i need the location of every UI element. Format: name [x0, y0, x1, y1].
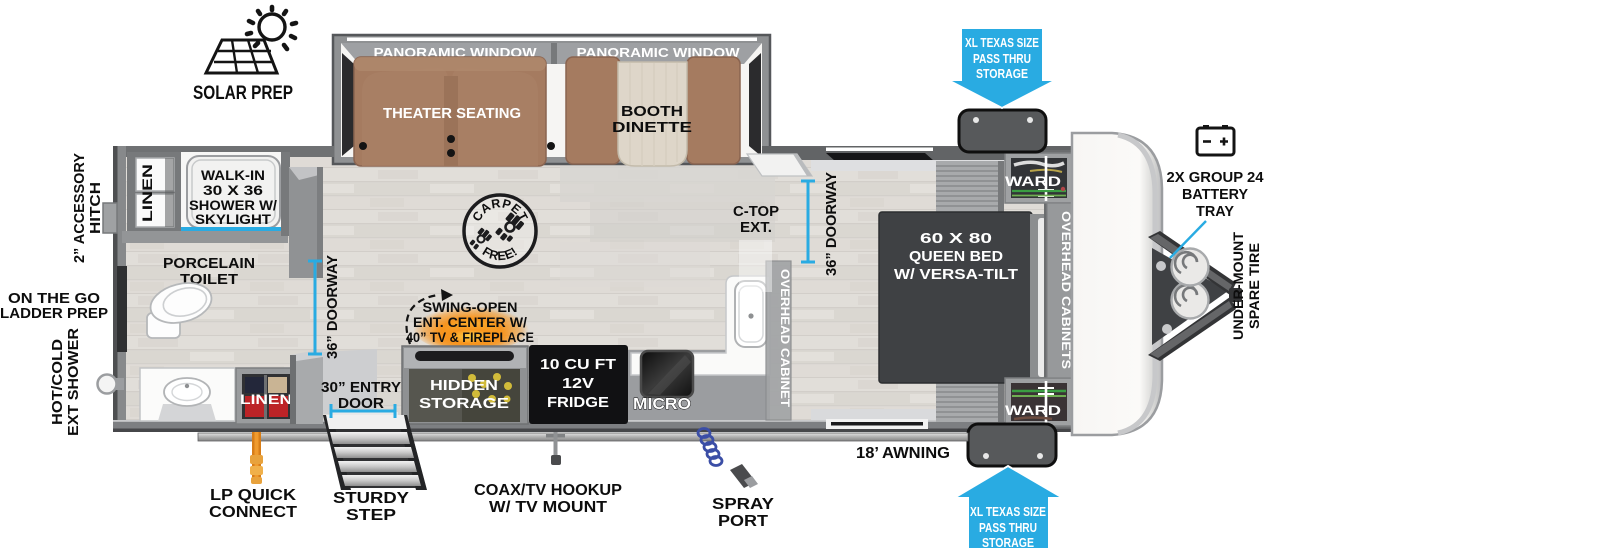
svg-text:36” DOORWAY: 36” DOORWAY [325, 255, 341, 359]
svg-text:HIDDEN: HIDDEN [430, 377, 498, 394]
svg-text:FRIDGE: FRIDGE [547, 394, 609, 411]
svg-text:EXT.: EXT. [740, 220, 772, 236]
svg-text:PASS THRU: PASS THRU [973, 52, 1031, 66]
svg-text:W/ VERSA-TILT: W/ VERSA-TILT [894, 266, 1018, 283]
svg-text:STORAGE: STORAGE [976, 67, 1028, 81]
svg-text:W/ TV MOUNT: W/ TV MOUNT [489, 499, 608, 516]
svg-text:STEP: STEP [346, 507, 396, 524]
svg-text:TRAY: TRAY [1196, 204, 1234, 220]
svg-text:SPRAY: SPRAY [712, 496, 775, 513]
svg-text:HOT/COLD: HOT/COLD [50, 339, 66, 425]
svg-text:LP QUICK: LP QUICK [210, 487, 297, 504]
svg-text:LINEN: LINEN [240, 392, 292, 407]
svg-text:40” TV & FIREPLACE: 40” TV & FIREPLACE [406, 330, 534, 345]
svg-text:WALK-IN: WALK-IN [201, 168, 265, 183]
svg-text:PORCELAIN: PORCELAIN [163, 256, 255, 272]
svg-text:HITCH: HITCH [88, 182, 104, 234]
svg-text:QUEEN BED: QUEEN BED [909, 248, 1003, 265]
svg-text:2X GROUP 24: 2X GROUP 24 [1167, 170, 1264, 186]
svg-text:LINEN: LINEN [140, 164, 155, 222]
svg-text:60 X 80: 60 X 80 [920, 230, 992, 247]
svg-text:36” DOORWAY: 36” DOORWAY [824, 172, 840, 276]
svg-text:30” ENTRY: 30” ENTRY [321, 379, 401, 396]
svg-text:ENT. CENTER W/: ENT. CENTER W/ [413, 315, 527, 330]
svg-text:EXT SHOWER: EXT SHOWER [66, 327, 82, 436]
svg-text:BATTERY: BATTERY [1182, 187, 1248, 203]
svg-text:CONNECT: CONNECT [209, 504, 298, 521]
svg-text:UNDER-MOUNT: UNDER-MOUNT [1231, 231, 1246, 340]
svg-text:STORAGE: STORAGE [982, 536, 1034, 549]
svg-text:18’ AWNING: 18’ AWNING [856, 445, 950, 462]
svg-text:SHOWER W/: SHOWER W/ [189, 198, 277, 213]
svg-text:THEATER SEATING: THEATER SEATING [383, 106, 521, 122]
svg-text:PORT: PORT [718, 513, 769, 530]
svg-text:OVERHEAD CABINET: OVERHEAD CABINET [778, 269, 792, 408]
svg-text:30 X 36: 30 X 36 [203, 183, 264, 198]
svg-text:C-TOP: C-TOP [733, 204, 779, 220]
svg-text:LADDER PREP: LADDER PREP [0, 305, 108, 322]
svg-text:BOOTH: BOOTH [621, 104, 683, 120]
svg-text:DINETTE: DINETTE [612, 120, 692, 136]
svg-text:WARD: WARD [1005, 402, 1061, 418]
svg-text:SOLAR PREP: SOLAR PREP [193, 83, 293, 104]
svg-text:XL TEXAS SIZE: XL TEXAS SIZE [970, 505, 1046, 519]
svg-text:WARD: WARD [1005, 173, 1061, 189]
svg-text:COAX/TV HOOKUP: COAX/TV HOOKUP [474, 482, 622, 499]
svg-text:PASS THRU: PASS THRU [979, 521, 1037, 535]
svg-text:DOOR: DOOR [338, 395, 384, 412]
svg-text:MICRO: MICRO [633, 396, 691, 413]
svg-text:STURDY: STURDY [333, 490, 410, 507]
svg-text:2” ACCESSORY: 2” ACCESSORY [72, 153, 88, 263]
svg-text:10 CU FT: 10 CU FT [540, 356, 616, 373]
svg-text:12V: 12V [562, 375, 594, 392]
svg-text:SPARE TIRE: SPARE TIRE [1247, 243, 1262, 329]
svg-text:SKYLIGHT: SKYLIGHT [195, 212, 272, 227]
svg-text:SWING-OPEN: SWING-OPEN [423, 300, 518, 315]
svg-text:STORAGE: STORAGE [419, 395, 509, 412]
svg-text:XL TEXAS SIZE: XL TEXAS SIZE [965, 36, 1039, 50]
